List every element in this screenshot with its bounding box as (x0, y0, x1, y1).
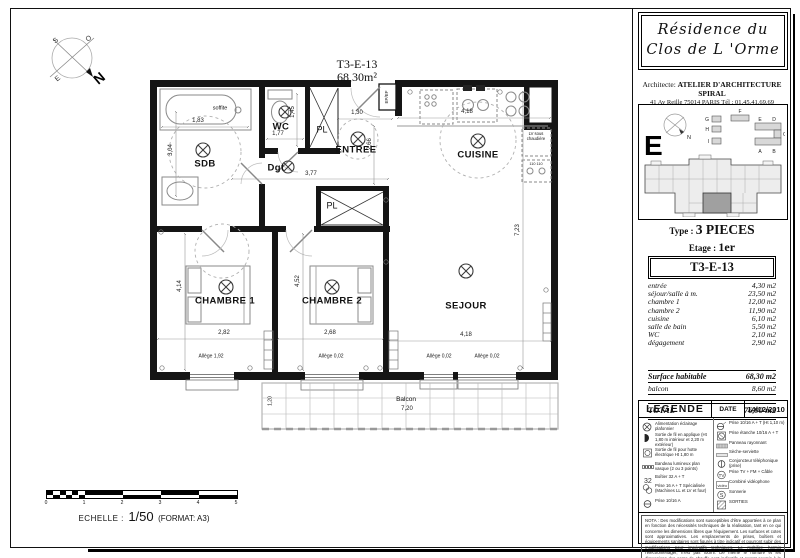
legend-header: LEGENDE DATE 14/12/2010 (639, 401, 787, 418)
keyplan-letter-a: A (758, 149, 762, 155)
floor-value: 1er (718, 240, 735, 254)
svg-text:vidéo: vidéo (718, 483, 728, 488)
doorbell-icon: S (716, 490, 729, 500)
legend-item: Bandeau lumineux plan vasque (2 ou 3 poi… (642, 462, 711, 472)
scale-tick-0: 0 (45, 500, 48, 506)
scale-tick-2: 2 (121, 500, 124, 506)
radiators (264, 303, 551, 369)
scale-format: (FORMAT: A3) (158, 514, 209, 523)
keyplan-compass (664, 114, 686, 136)
type-block: Type : 3 PIECES Etage : 1er (638, 222, 786, 255)
dim-allege-sejour2: Allège 0,02 (474, 355, 499, 360)
keyplan-drawing: N E G H I F E D C A B (639, 105, 785, 217)
svg-text:TV: TV (719, 473, 725, 478)
dim-allege-chambre1: Allège 1,92 (198, 355, 223, 360)
legend-box: LEGENDE DATE 14/12/2010 Alimentation écl… (638, 400, 788, 544)
tv-socket-icon: TV (716, 470, 729, 480)
legend-item: S Sonnerie (716, 490, 785, 500)
dim-allege-chambre2: Allège 0,02 (318, 355, 343, 360)
floor-label: Etage : (689, 243, 716, 253)
wall-light-icon (642, 433, 655, 443)
table-row: dégagement2,90 m2 (648, 339, 776, 347)
dim-wc-height: 1,45 (290, 106, 296, 118)
legend-title: LEGENDE (639, 401, 712, 417)
legend-date-value: 14/12/2010 (745, 401, 787, 417)
kitchen-appliance (420, 90, 453, 124)
keyplan-letter-b: B (772, 149, 776, 155)
legend-date-label: DATE (712, 401, 745, 417)
keyplan-letter-c: C (783, 132, 785, 138)
legend-item: Conjoncteur téléphonique (prise) (716, 459, 785, 469)
legend-item: Sortie de fil en applique (Ht 1,80 m int… (642, 433, 711, 448)
room-label-chambre1: CHAMBRE 1 (195, 296, 255, 306)
plan-unit-title: T3-E-13 (337, 58, 378, 70)
keyplan-building-letter: E (644, 130, 663, 161)
legend-note: NOTA : Des modifications sont susceptibl… (641, 515, 785, 558)
legend-item: Sortie de fil pour hotte électrique Ht 1… (642, 448, 711, 458)
scale-ratio: 1/50 (128, 509, 153, 524)
ceiling-light-icon (642, 422, 655, 432)
plan-unit-area: 68,30m² (337, 71, 377, 83)
waterproof-socket-icon (716, 431, 729, 441)
annotation-110: 110 110 (529, 163, 542, 167)
dim-wc-width: 1,77 (272, 131, 284, 137)
keyplan-letter-h: H (705, 127, 709, 133)
phone-jack-icon (716, 459, 729, 469)
dim-sejour-width: 4,18 (460, 332, 472, 338)
dim-chambre2-width: 2,68 (324, 330, 336, 336)
keyplan-block-key (712, 115, 781, 145)
keyplan-letter-i: I (708, 139, 709, 145)
legend-item: Alimentation éclairage plafonnier (642, 422, 711, 432)
socket-110-icon (716, 421, 729, 431)
dim-sdb-width: 1,83 (192, 118, 204, 124)
dim-sdb-height: 3,04 (168, 144, 174, 156)
architect-prefix: Architecte: (642, 80, 675, 89)
scale-tick-4: 4 (197, 500, 200, 506)
legend-body: Alimentation éclairage plafonnier Sortie… (639, 418, 787, 513)
scale-bar-graphic (46, 490, 238, 499)
keyplan-box: N E G H I F E D C A B (638, 104, 788, 220)
light-strip-icon (642, 462, 655, 472)
keyplan-building-footprint (645, 155, 781, 217)
specialized-socket-icon (642, 484, 655, 494)
scale-label: ECHELLE : 1/50 (FORMAT: A3) (44, 508, 244, 526)
area-table-rows: entrée4,30 m2 séjour/salle à m.23,50 m2 … (648, 282, 776, 348)
room-label-chambre2: CHAMBRE 2 (302, 296, 362, 306)
dim-balcon-width: 7,20 (401, 406, 413, 412)
room-label-pl2: PL (326, 202, 337, 211)
keyplan-north-label: N (687, 135, 691, 141)
room-label-pl1: PL (316, 126, 327, 135)
residence-title-box: Résidence du Clos de L 'Orme (638, 12, 788, 70)
type-label: Type : (669, 226, 693, 236)
drawing-sheet: S O E N T3-E-13 68,30m² SDB WC Dgt ENTRE… (0, 0, 800, 558)
keyplan-highlighted-unit (703, 193, 731, 213)
dim-dgt-width: 3,77 (305, 171, 317, 177)
area-table: T3-E-13 entrée4,30 m2 séjour/salle à m.2… (648, 256, 776, 420)
scale-label-prefix: ECHELLE : (78, 514, 123, 523)
svg-text:S: S (720, 493, 724, 499)
hood-outlet-icon (642, 448, 655, 458)
dim-chambre1-height: 4,14 (177, 280, 183, 292)
dim-chambre1-width: 2,82 (218, 330, 230, 336)
keyplan-letter-f: F (738, 109, 741, 115)
residence-title-line2: Clos de L 'Orme (646, 41, 779, 61)
hob-burner (506, 92, 516, 102)
keyplan-letter-d: D (772, 117, 776, 123)
dim-entree-height: 2,66 (367, 138, 373, 150)
scale-tick-3: 3 (159, 500, 162, 506)
legend-item: Prise 10/16 A (642, 499, 711, 509)
videophone-icon: vidéo (716, 480, 729, 490)
socket-icon (642, 499, 655, 509)
dim-entree-width: 1,30 (351, 110, 363, 116)
annotation-epef-duct: EP/EF (385, 90, 390, 103)
room-label-cuisine: CUISINE (457, 150, 498, 160)
type-value: 3 PIECES (696, 222, 755, 237)
area-table-unit: T3-E-13 (650, 258, 774, 277)
surface-habitable-row: Surface habitable 68,30 m2 (648, 370, 776, 383)
residence-title-line1: Résidence du (658, 21, 769, 41)
legend-item: SORTIES (716, 500, 785, 510)
dim-cuisine-width: 4,18 (461, 109, 473, 115)
annotation-soffite: soffite (213, 106, 228, 112)
architect-block: Architecte: ATELIER D'ARCHITECTURE SPIRA… (636, 80, 788, 106)
legend-item: Prise 16 A + T Spécialisée (Machines LL … (642, 484, 711, 494)
keyplan-letter-g: G (705, 117, 709, 123)
toilet (268, 90, 292, 99)
dim-chambre2-height: 4,52 (295, 275, 301, 287)
room-label-dgt: Dgt (267, 163, 284, 173)
dim-balcon-depth: 1,20 (269, 396, 274, 406)
legend-item: vidéo Combiné vidéophone (716, 480, 785, 490)
scale-tick-1: 1 (83, 500, 86, 506)
dim-allege-sejour1: Allège 0,02 (426, 355, 451, 360)
walls (150, 80, 558, 380)
balcon-row: balcon 8,60 m2 (648, 383, 776, 395)
scale-bar: 0 1 2 3 4 5 ECHELLE : 1/50 (FORMAT: A3) (44, 486, 244, 530)
scale-tick-5: 5 (235, 500, 238, 506)
architect-name: ATELIER D'ARCHITECTURE SPIRAL (678, 80, 782, 98)
dim-sejour-height: 7,23 (515, 224, 521, 236)
keyplan-letter-e: E (758, 117, 762, 123)
sorties-hatch-icon (716, 500, 729, 510)
annotation-lv: LV sous chaudière (523, 132, 549, 142)
room-label-sdb: SDB (194, 159, 215, 169)
room-label-balcon: Balcon (396, 397, 416, 404)
residence-title-inner: Résidence du Clos de L 'Orme (641, 15, 785, 67)
room-label-sejour: SEJOUR (445, 301, 486, 311)
area-table-header-box: T3-E-13 (648, 256, 776, 279)
